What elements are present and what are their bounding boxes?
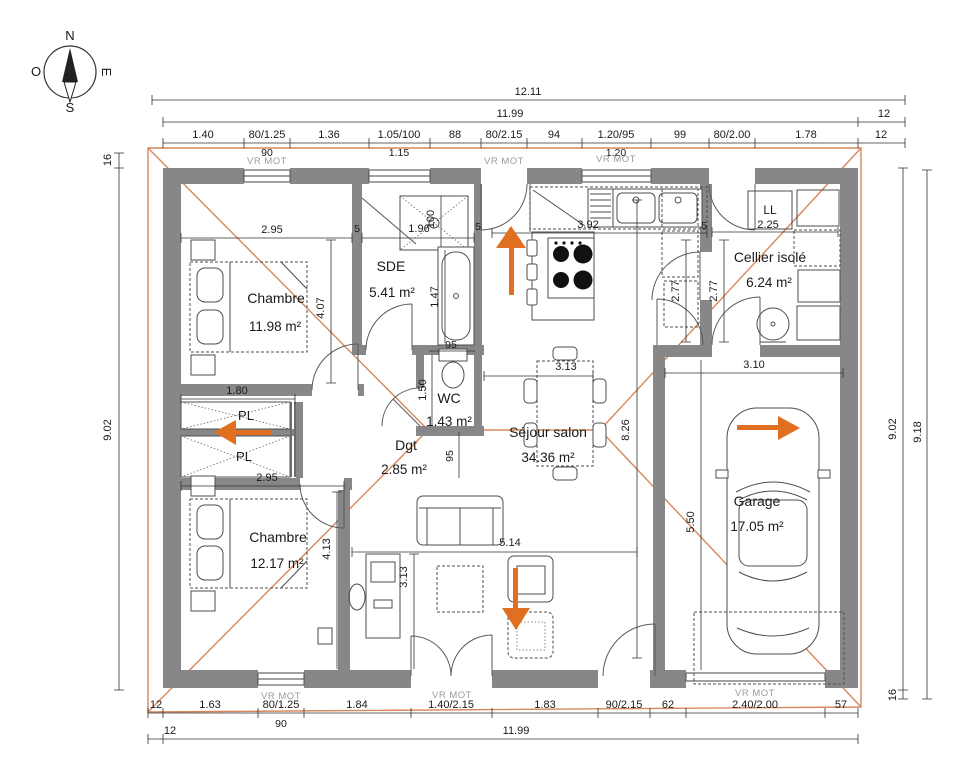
coffee-table xyxy=(437,566,483,612)
dim-seg: 57 xyxy=(835,699,847,711)
room-chambre2-area: 12.17 m² xyxy=(250,556,304,571)
compass-north: N xyxy=(65,28,74,43)
shutter-tag: VR MOT xyxy=(596,154,636,165)
toilet-wc xyxy=(439,349,467,388)
room-chambre1-area: 11.98 m² xyxy=(249,319,302,334)
dim-sejour-h: 8.26 xyxy=(620,419,632,440)
closet-label-2: PL xyxy=(236,449,252,464)
room-sde-name: SDE xyxy=(377,258,406,274)
dim-chambre2-h: 4.13 xyxy=(321,538,333,559)
dim-pl-w: 1.80 xyxy=(226,385,247,397)
dim-chambre1-w: 2.95 xyxy=(261,224,282,236)
dim-wc-h: 1.50 xyxy=(417,379,429,400)
floor-plan-drawing: N S O E 12.11 11.99 12 1.40 80/1.25 1.36… xyxy=(0,0,960,769)
room-garage-name: Garage xyxy=(734,493,781,509)
dim-right-total: 9.18 xyxy=(912,421,924,442)
room-cellier-area: 6.24 m² xyxy=(746,275,792,290)
washer-label: LL xyxy=(763,203,777,217)
desk-area xyxy=(349,554,400,638)
dim-inner-width-btm: 11.99 xyxy=(503,725,530,737)
room-chambre2-name: Chambre xyxy=(249,529,307,545)
dim-garage-h: 5.50 xyxy=(685,511,697,532)
dim-seg: 12 xyxy=(875,129,887,141)
room-sde-area: 5.41 m² xyxy=(369,285,415,300)
dim-table-w: 3.13 xyxy=(555,361,576,373)
dim-seg: 90/2.15 xyxy=(606,699,643,711)
compass-east: E xyxy=(99,68,114,77)
compass-south: S xyxy=(66,100,75,115)
dim-seg: 12 xyxy=(164,725,176,737)
room-chambre1-name: Chambre xyxy=(247,290,305,306)
kitchen-sink xyxy=(613,189,702,227)
dim-seg: 62 xyxy=(662,699,674,711)
dim-seg: 2.40/2.00 xyxy=(732,699,778,711)
dim-sejour-w: 5.14 xyxy=(499,537,520,549)
dim-chambre2-w: 2.95 xyxy=(256,472,277,484)
cellier-fixtures xyxy=(748,190,840,342)
dim-washer-w: 2.25 xyxy=(757,219,778,231)
left-dimensions: 16 9.02 xyxy=(102,153,124,690)
dim-seg: 99 xyxy=(674,129,686,141)
room-labels: Chambre 11.98 m² SDE 5.41 m² WC 1.43 m² … xyxy=(236,203,806,571)
dim-cellier-d1: 2.77 xyxy=(670,280,682,301)
dim-right-overhang-btm: 16 xyxy=(887,689,899,701)
compass-icon: N S O E xyxy=(31,28,114,115)
dim-seg: 1.78 xyxy=(795,129,816,141)
shutter-tag: VR MOT xyxy=(484,156,524,167)
bathtub xyxy=(438,247,474,345)
dim-left-overhang: 16 xyxy=(102,154,114,166)
room-garage-area: 17.05 m² xyxy=(730,519,784,534)
floor-plan-page: N S O E 12.11 11.99 12 1.40 80/1.25 1.36… xyxy=(0,0,960,769)
dim-cellier-d2: 2.77 xyxy=(708,280,720,301)
compass-west: O xyxy=(31,64,41,79)
dim-seg: 1.84 xyxy=(346,699,367,711)
dim-wc-w: 95 xyxy=(445,339,457,351)
shutter-tag: VR MOT xyxy=(735,688,775,699)
closet-label-1: PL xyxy=(238,408,254,423)
dim-seg: 94 xyxy=(548,129,560,141)
room-sejour-area: 34.36 m² xyxy=(521,450,575,465)
dim-seg: 80/1.25 xyxy=(249,129,286,141)
dim-sub: 1.15 xyxy=(389,147,410,159)
dim-sub: 90 xyxy=(275,718,287,730)
dim-left-height: 9.02 xyxy=(102,419,114,440)
dim-wall: 5 xyxy=(701,220,707,232)
room-cellier-name: Cellier isolé xyxy=(734,249,807,265)
room-sejour-name: Séjour salon xyxy=(509,424,587,440)
right-dimensions: 9.02 16 9.18 xyxy=(887,168,932,701)
shutter-tag: VR MOT xyxy=(247,156,287,167)
room-wc-name: WC xyxy=(437,390,460,406)
dim-total-width: 12.11 xyxy=(515,86,542,98)
dim-seg: 1.36 xyxy=(318,129,339,141)
room-dgt-area: 2.85 m² xyxy=(381,462,427,477)
dim-seg: 1.63 xyxy=(199,699,220,711)
room-wc-area: 1.43 m² xyxy=(426,414,472,429)
bed-chambre1 xyxy=(190,240,307,375)
dim-seg: 1.20/95 xyxy=(598,129,635,141)
sofa xyxy=(417,496,503,545)
dim-seg: 88 xyxy=(449,129,461,141)
bottom-dimensions: 12 1.63 80/1.25 1.84 1.40/2.15 1.83 90/2… xyxy=(148,699,858,744)
dim-kitchen-w: 3.92 xyxy=(577,219,598,231)
entry-arrow-icon xyxy=(496,226,526,295)
dim-shower-d: 100 xyxy=(425,210,437,228)
shutter-tag: VR MOT xyxy=(432,690,472,701)
shutter-tag: VR MOT xyxy=(261,691,301,702)
dim-bureau-h: 3.13 xyxy=(398,566,410,587)
dim-seg: 1.40 xyxy=(192,129,213,141)
kitchen-island xyxy=(532,232,594,320)
room-dgt-name: Dgt xyxy=(395,437,417,453)
dim-hall-w: 95 xyxy=(444,450,456,462)
dim-seg: 80/2.00 xyxy=(714,129,751,141)
dim-chambre1-h: 4.07 xyxy=(315,297,327,318)
bar-stools xyxy=(527,240,537,305)
dim-right-height: 9.02 xyxy=(887,418,899,439)
dim-right-overhang: 12 xyxy=(878,108,890,120)
closet-arrow-icon xyxy=(214,420,272,445)
dim-wall: 5 xyxy=(475,221,481,233)
dim-seg: 80/2.15 xyxy=(486,129,523,141)
dim-seg: 1.83 xyxy=(534,699,555,711)
water-heater xyxy=(757,308,789,342)
dim-inner-width: 11.99 xyxy=(497,108,524,120)
dim-garage-w: 3.10 xyxy=(743,359,764,371)
dim-seg: 1.05/100 xyxy=(378,129,421,141)
dim-wall: 5 xyxy=(354,223,360,235)
dim-bath-l: 1.47 xyxy=(429,286,441,307)
dim-seg: 12 xyxy=(150,699,162,711)
